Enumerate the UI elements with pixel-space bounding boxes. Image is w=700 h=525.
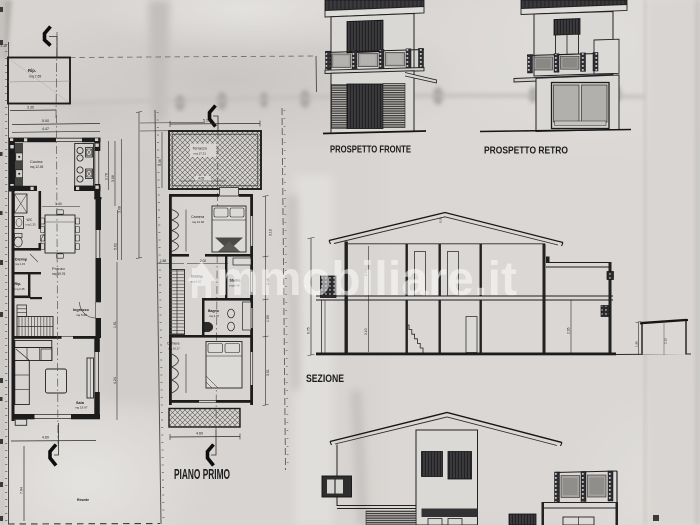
svg-text:Ingresso: Ingresso [73, 308, 90, 312]
svg-text:Pranzo: Pranzo [52, 266, 65, 271]
svg-text:2.95: 2.95 [567, 327, 571, 334]
svg-text:4.24: 4.24 [113, 377, 117, 384]
svg-text:3.08: 3.08 [118, 206, 122, 213]
svg-text:mmobiliare.it: mmobiliare.it [216, 253, 517, 306]
svg-text:Bagno: Bagno [208, 309, 219, 313]
svg-text:6.75: 6.75 [307, 327, 311, 334]
svg-text:mq 2.35: mq 2.35 [15, 287, 26, 291]
svg-text:1.90: 1.90 [266, 315, 270, 322]
svg-text:Disimp: Disimp [15, 258, 28, 262]
svg-text:3.51: 3.51 [266, 369, 270, 376]
svg-text:mq 19.76: mq 19.76 [52, 272, 66, 276]
svg-text:PIANO PRIMO: PIANO PRIMO [174, 466, 230, 483]
svg-text:7.64: 7.64 [20, 487, 24, 494]
svg-text:Terrazzo: Terrazzo [193, 147, 208, 151]
svg-text:Camera: Camera [191, 215, 205, 219]
svg-text:mq 12.45: mq 12.45 [30, 165, 44, 169]
svg-text:1.61: 1.61 [113, 321, 117, 328]
svg-text:mq 7.65: mq 7.65 [29, 75, 41, 79]
svg-text:5.00: 5.00 [42, 119, 49, 123]
svg-text:4.60: 4.60 [196, 432, 203, 436]
svg-text:5.62: 5.62 [114, 243, 118, 250]
svg-text:9.20: 9.20 [439, 217, 443, 223]
svg-text:2.30: 2.30 [1, 44, 7, 48]
svg-text:mq 1.33: mq 1.33 [26, 223, 37, 227]
svg-text:3.40: 3.40 [55, 202, 62, 206]
svg-text:1.88: 1.88 [160, 259, 166, 263]
svg-text:PROSPETTO FRONTE: PROSPETTO FRONTE [330, 144, 411, 156]
svg-text:2.10: 2.10 [664, 338, 668, 344]
svg-text:4.60: 4.60 [42, 436, 49, 440]
svg-text:SEZIONE: SEZIONE [306, 373, 344, 385]
svg-text:mq 17.31: mq 17.31 [194, 152, 207, 156]
svg-text:mq 14.02: mq 14.02 [192, 220, 204, 224]
svg-text:mq 19.97: mq 19.97 [75, 406, 88, 410]
svg-text:3.06: 3.06 [111, 175, 115, 182]
svg-text:Rip.: Rip. [15, 282, 22, 286]
svg-text:Camera: Camera [167, 342, 180, 346]
svg-text:Cucina: Cucina [30, 159, 43, 164]
svg-text:Resede: Resede [77, 498, 89, 502]
svg-text:5.13: 5.13 [203, 119, 210, 123]
svg-text:mq 1.15: mq 1.15 [15, 262, 26, 266]
svg-text:3.10: 3.10 [364, 328, 368, 335]
svg-text:Rip.: Rip. [28, 68, 36, 73]
svg-text:3.36: 3.36 [158, 159, 162, 166]
svg-text:3.30: 3.30 [27, 106, 34, 110]
svg-text:WC: WC [27, 218, 33, 222]
svg-text:mq 5.88: mq 5.88 [76, 313, 87, 317]
svg-text:mq 16.17: mq 16.17 [168, 346, 180, 350]
svg-text:3.10: 3.10 [269, 229, 273, 236]
svg-text:4.47: 4.47 [42, 127, 49, 131]
svg-text:4.05: 4.05 [198, 177, 204, 181]
svg-text:PROSPETTO RETRO: PROSPETTO RETRO [484, 145, 568, 157]
svg-text:2.76: 2.76 [105, 173, 109, 180]
svg-text:1.80: 1.80 [635, 341, 639, 347]
svg-text:mq 4.97: mq 4.97 [209, 314, 220, 318]
svg-text:Sala: Sala [76, 401, 85, 405]
